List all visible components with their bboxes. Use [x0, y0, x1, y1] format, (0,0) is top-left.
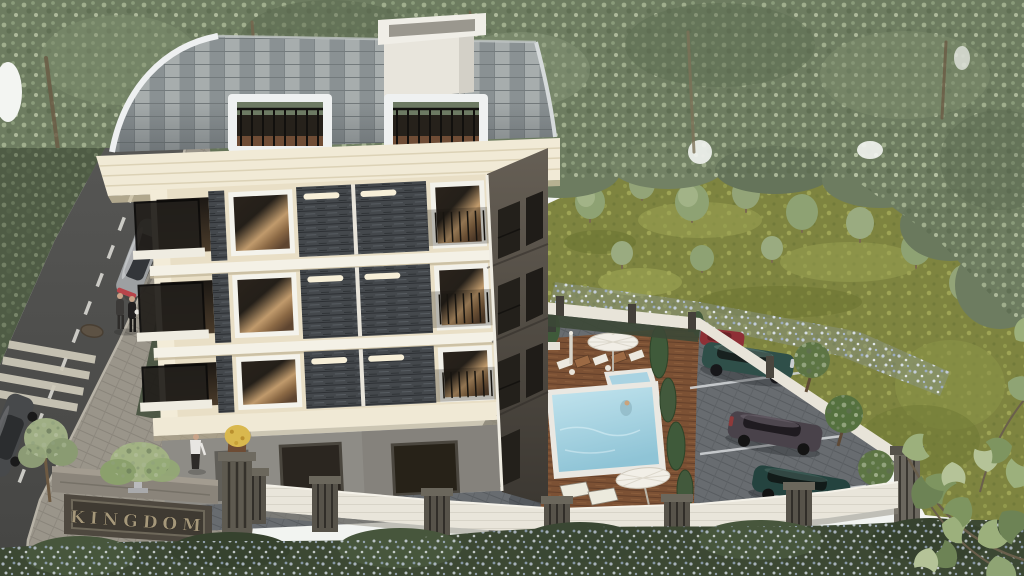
swimmer	[620, 400, 632, 416]
french-balcony	[432, 290, 494, 327]
swimming-pool	[546, 381, 666, 479]
french-balcony	[436, 368, 497, 401]
balcony	[131, 200, 206, 260]
architectural-render: KINGDOM	[0, 0, 1024, 576]
parasol-closed	[569, 331, 573, 364]
roof-dormer-left	[228, 94, 332, 152]
balcony	[138, 364, 212, 411]
gate-pillar	[218, 452, 256, 534]
french-balcony	[428, 208, 490, 245]
chimney	[378, 13, 486, 100]
balcony	[134, 282, 209, 341]
